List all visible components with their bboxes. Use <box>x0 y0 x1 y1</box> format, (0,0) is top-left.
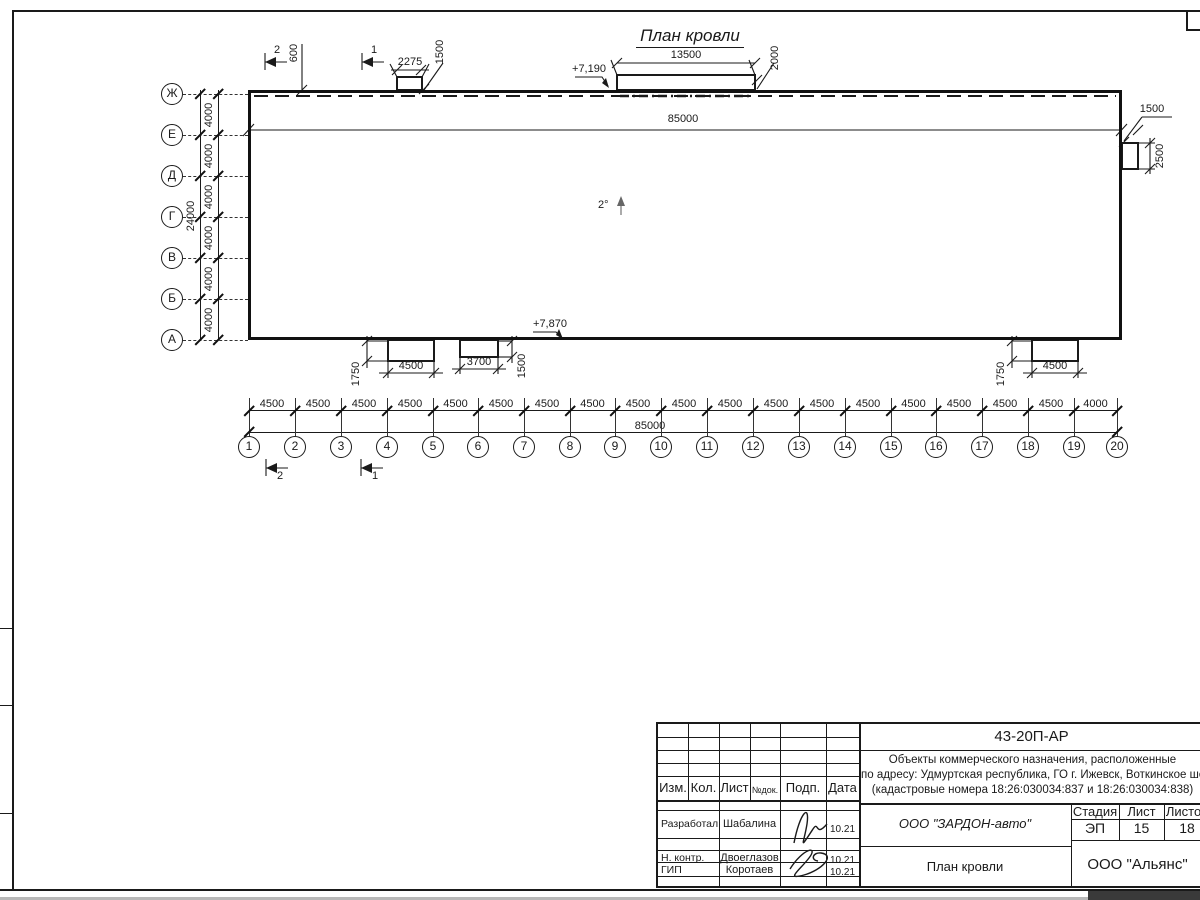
column-spacing-label: 4500 <box>983 398 1027 410</box>
tb-header-kol: Кол. <box>688 781 719 794</box>
column-axis-bubble: 8 <box>559 436 581 458</box>
tb-customer: ООО "ЗАРДОН-авто" <box>859 817 1071 830</box>
tb-role-developer: Разработал <box>661 818 717 831</box>
tb-list-header: Лист <box>1119 805 1164 818</box>
column-axis-bubble: 7 <box>513 436 535 458</box>
tb-header-ndok: №док. <box>750 784 780 797</box>
tb-name-developer: Шабалина <box>719 818 780 831</box>
dim-1500-right: 1500 <box>1130 103 1174 115</box>
column-spacing-label: 4500 <box>342 398 386 410</box>
dim-600: 600 <box>288 33 300 73</box>
row-axis-bubble: Б <box>161 288 183 310</box>
dim-1500-b: 1500 <box>516 346 528 386</box>
section-mark-1-bottom: 1 <box>366 470 384 482</box>
column-axis-bubble: 16 <box>925 436 947 458</box>
tb-header-izm: Изм. <box>658 781 688 794</box>
column-axis-bubble: 3 <box>330 436 352 458</box>
tb-role-gip: ГИП <box>661 864 717 877</box>
row-axis-bubble: Г <box>161 206 183 228</box>
dim-1750-c: 1750 <box>995 354 1007 394</box>
column-spacing-label: 4500 <box>846 398 890 410</box>
elevation-bottom-label: +7,870 <box>527 318 573 330</box>
row-axis-bubble: Ж <box>161 83 183 105</box>
row-axis-bubble: Е <box>161 124 183 146</box>
column-spacing-label: 4500 <box>1029 398 1073 410</box>
column-axis-bubble: 6 <box>467 436 489 458</box>
dim-total-bottom: 85000 <box>610 420 690 432</box>
column-axis-bubble: 15 <box>880 436 902 458</box>
section-mark-2-top: 2 <box>268 44 286 56</box>
column-axis-bubble: 9 <box>604 436 626 458</box>
column-axis-bubble: 2 <box>284 436 306 458</box>
dim-3700-b: 3700 <box>457 356 501 368</box>
column-axis-bubble: 19 <box>1063 436 1085 458</box>
tb-line <box>658 810 859 811</box>
column-axis-bubble: 11 <box>696 436 718 458</box>
tb-line <box>780 724 781 888</box>
column-spacing-label: 4500 <box>525 398 569 410</box>
tb-sheet-value: 15 <box>1119 822 1164 835</box>
column-axis-bubble: 5 <box>422 436 444 458</box>
dim-1500-top: 1500 <box>434 32 446 72</box>
slope-label: 2° <box>598 199 618 211</box>
tb-line <box>658 838 859 839</box>
building-outline <box>248 90 1122 340</box>
row-axis-bubble: А <box>161 329 183 351</box>
dim-2000: 2000 <box>769 38 781 78</box>
row-spacing-label: 4000 <box>203 300 215 340</box>
tb-sheet-name: План кровли <box>859 860 1071 873</box>
column-spacing-label: 4500 <box>708 398 752 410</box>
tb-line <box>859 846 1071 847</box>
tb-line <box>658 850 859 851</box>
column-axis-bubble: 14 <box>834 436 856 458</box>
tb-line <box>1071 840 1200 841</box>
column-axis-bubble: 12 <box>742 436 764 458</box>
column-spacing-label: 4500 <box>754 398 798 410</box>
tb-doc-number: 43-20П-АР <box>859 730 1200 743</box>
row-axis-bubble: Д <box>161 165 183 187</box>
tb-listov-header: Листов <box>1164 805 1200 818</box>
tb-address-line-1: Объекты коммерческого назначения, распол… <box>861 754 1200 767</box>
row-axis-bubble: В <box>161 247 183 269</box>
column-axis-bubble: 10 <box>650 436 672 458</box>
dim-4500-c: 4500 <box>1033 360 1077 372</box>
tb-header-list: Лист <box>719 781 750 794</box>
tb-header-podp: Подп. <box>780 781 826 794</box>
titleblock: Изм. Кол. Лист №док. Подп. Дата Разработ… <box>656 722 1200 888</box>
column-axis-bubble: 4 <box>376 436 398 458</box>
tb-line <box>658 763 859 764</box>
tb-sheets-value: 18 <box>1164 822 1200 835</box>
tb-line <box>658 800 859 802</box>
page-title: План кровли <box>590 26 790 46</box>
bottom-dim-line-2 <box>249 432 1117 433</box>
dim-1750-a: 1750 <box>350 354 362 394</box>
tb-stage-value: ЭП <box>1071 822 1119 835</box>
dim-2500-right: 2500 <box>1154 136 1166 176</box>
column-spacing-label: 4500 <box>662 398 706 410</box>
row-spacing-label: 4000 <box>203 177 215 217</box>
tb-name-gip: Коротаев <box>719 864 780 877</box>
dim-total-top: 85000 <box>633 113 733 125</box>
tb-address-line-2: по адресу: Удмуртская республика, ГО г. … <box>861 769 1200 782</box>
column-spacing-label: 4500 <box>892 398 936 410</box>
dim-4500-a: 4500 <box>389 360 433 372</box>
tb-stage-header: Стадия <box>1071 805 1119 818</box>
tb-date-developer: 10.21 <box>826 823 859 836</box>
row-spacing-label: 4000 <box>203 218 215 258</box>
tb-line <box>658 776 859 777</box>
drawing-sheet: План кровли 85000 2° +7,190 +7,870 2 1 2… <box>0 0 1200 900</box>
bottom-dim-line-1 <box>249 410 1118 411</box>
column-axis-bubble: 13 <box>788 436 810 458</box>
tb-date-gip: 10.21 <box>826 866 859 879</box>
tb-org: ООО "Альянс" <box>1071 858 1200 871</box>
column-spacing-label: 4500 <box>800 398 844 410</box>
row-spacing-label: 4000 <box>203 95 215 135</box>
elevation-top-label: +7,190 <box>568 63 610 75</box>
dim-2275: 2275 <box>386 56 434 68</box>
column-axis-bubble: 20 <box>1106 436 1128 458</box>
dim-13500: 13500 <box>656 49 716 61</box>
tb-line <box>658 750 1200 751</box>
column-spacing-label: 4500 <box>388 398 432 410</box>
column-spacing-label: 4500 <box>616 398 660 410</box>
column-spacing-label: 4500 <box>479 398 523 410</box>
tb-address-line-3: (кадастровые номера 18:26:030034:837 и 1… <box>861 784 1200 797</box>
column-spacing-label: 4500 <box>250 398 294 410</box>
section-mark-1-top: 1 <box>365 44 383 56</box>
tb-line <box>658 737 859 738</box>
row-spacing-label: 4000 <box>203 136 215 176</box>
section-mark-2-bottom: 2 <box>271 470 289 482</box>
column-axis-bubble: 17 <box>971 436 993 458</box>
column-spacing-label: 4500 <box>434 398 478 410</box>
column-spacing-label: 4000 <box>1074 398 1118 410</box>
column-spacing-label: 4500 <box>296 398 340 410</box>
column-axis-bubble: 18 <box>1017 436 1039 458</box>
row-spacing-label: 4000 <box>203 259 215 299</box>
tb-header-data: Дата <box>826 781 859 794</box>
column-axis-bubble: 1 <box>238 436 260 458</box>
dim-row-total: 24000 <box>185 186 197 246</box>
column-spacing-label: 4500 <box>937 398 981 410</box>
column-spacing-label: 4500 <box>571 398 615 410</box>
